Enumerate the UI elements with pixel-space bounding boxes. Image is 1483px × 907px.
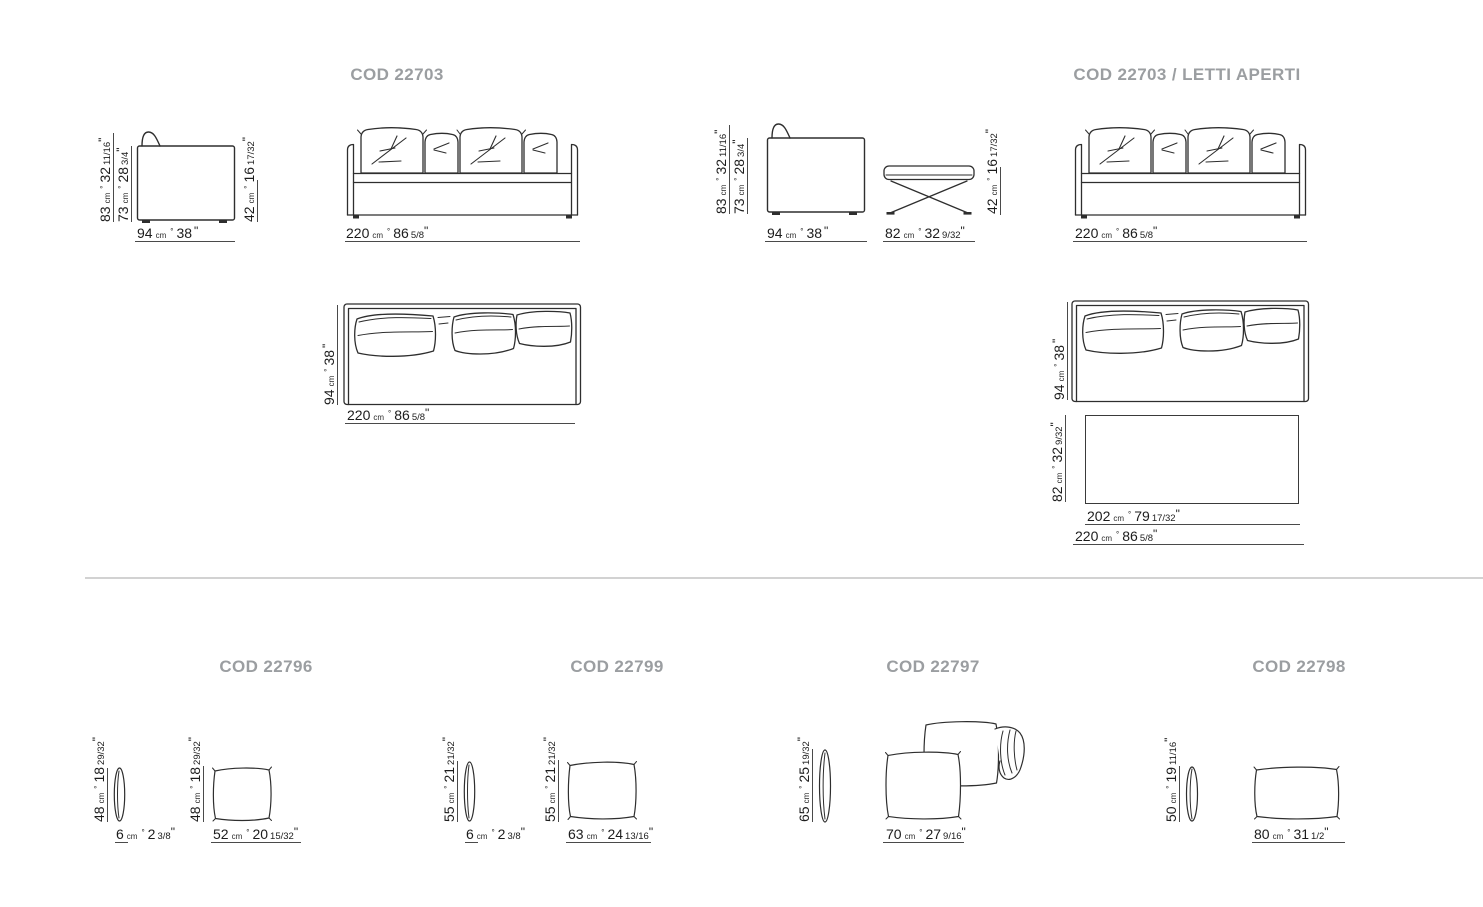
dim-e-side-height: 65cm°2519/32" [795,737,810,822]
dim-line [337,305,338,405]
dim-line [1073,241,1307,242]
section-title-cushion-22797: COD 22797 [886,657,979,677]
dim-line [135,241,235,242]
sofa-front-view-drawing [1073,125,1308,222]
dim-b-total-height: 83cm°3211/16" [712,130,727,214]
dim-line [566,842,651,843]
dim-line [1073,544,1304,545]
dim-a-top-depth: 94cm°38" [320,344,335,405]
dim-line [345,241,580,242]
dim-f-front-width: 80cm°311/2" [1254,825,1329,840]
dim-c-front-height: 48cm°1829/32" [186,737,201,822]
cushion-front-view-drawing [1252,764,1341,822]
dim-line [211,842,301,843]
section-divider [85,577,1483,579]
dim-e-front-width: 70cm°279/16" [886,825,966,840]
dim-line [465,842,478,843]
dim-line [765,241,867,242]
section-title-cushion-22799: COD 22799 [570,657,663,677]
dim-line [883,241,975,242]
dim-line [883,842,964,843]
dim-line [1000,167,1001,215]
cushion-front-view-drawing [211,765,273,823]
dim-b-back-height: 73cm°283/4" [730,139,745,214]
dim-d-front-width: 63cm°2413/16" [568,825,653,840]
sofa-top-view-drawing [343,303,582,406]
dim-line [257,180,258,222]
dim-c-side-height: 48cm°1829/32" [90,737,105,822]
dim-line [1179,766,1180,822]
section-title-sofa: COD 22703 [350,65,443,85]
dim-line [115,842,128,843]
dim-a-top-width: 220cm°865/8" [347,406,429,421]
dim-line [812,749,813,822]
cushion-pair-front-view-drawing [883,717,1035,827]
dim-line [558,760,559,822]
dim-a-front-width: 220cm°865/8" [346,224,428,239]
open-bed-outline-drawing [1085,415,1299,504]
dim-c-front-width: 52cm°2015/32" [213,825,298,840]
section-title-cushion-22798: COD 22798 [1252,657,1345,677]
dim-line [203,766,204,822]
dim-b-bench-width: 82cm°329/32" [885,224,965,239]
cushion-side-view-drawing [817,748,833,824]
dim-b-total-width: 220cm°865/8" [1075,527,1157,542]
dim-line [345,423,575,424]
dim-b-depth: 94cm°38" [767,224,828,239]
cushion-side-view-drawing [462,760,477,823]
section-title-sofa-open-bed: COD 22703 / LETTI APERTI [1073,65,1300,85]
dim-line [747,138,748,214]
dim-b-bed-depth: 82cm°329/32" [1048,422,1063,502]
dim-line [1065,415,1066,502]
dim-b-bed-width: 202cm°7917/32" [1087,507,1180,522]
dim-line [1067,302,1068,400]
dim-b-bench-height: 42cm°1617/32" [983,129,998,214]
cushion-side-view-drawing [1184,765,1200,823]
dim-a-depth: 94cm°38" [137,224,198,239]
dim-a-back-height: 73cm°283/4" [114,147,129,222]
dim-c-thickness: 6cm°23/8" [116,825,175,840]
dim-b-front-width: 220cm°865/8" [1075,224,1157,239]
sofa-top-view-drawing [1071,300,1310,403]
dim-line [107,768,108,822]
bench-side-view-drawing [883,165,975,218]
dim-f-side-height: 50cm°1911/16" [1162,738,1177,822]
sofa-front-view-drawing [345,125,580,222]
dim-a-seat-height: 42cm°1617/32" [240,137,255,222]
spec-sheet: COD 22703 COD 22703 / LETTI APERTI COD 2… [0,0,1483,907]
dim-a-total-height: 83cm°3211/16" [96,138,111,222]
cushion-front-view-drawing [566,759,638,822]
dim-d-side-height: 55cm°2121/32" [440,737,455,822]
dim-line [1252,842,1345,843]
dim-d-front-height: 55cm°2121/32" [541,737,556,822]
cushion-side-view-drawing [112,766,127,823]
section-title-cushion-22796: COD 22796 [219,657,312,677]
dim-line [1085,524,1300,525]
sofa-side-view-drawing [765,120,867,215]
sofa-side-view-drawing [135,128,237,223]
dim-line [457,761,458,822]
dim-b-top-depth: 94cm°38" [1050,339,1065,400]
dim-line [131,146,132,222]
dim-d-thickness: 6cm°23/8" [466,825,525,840]
